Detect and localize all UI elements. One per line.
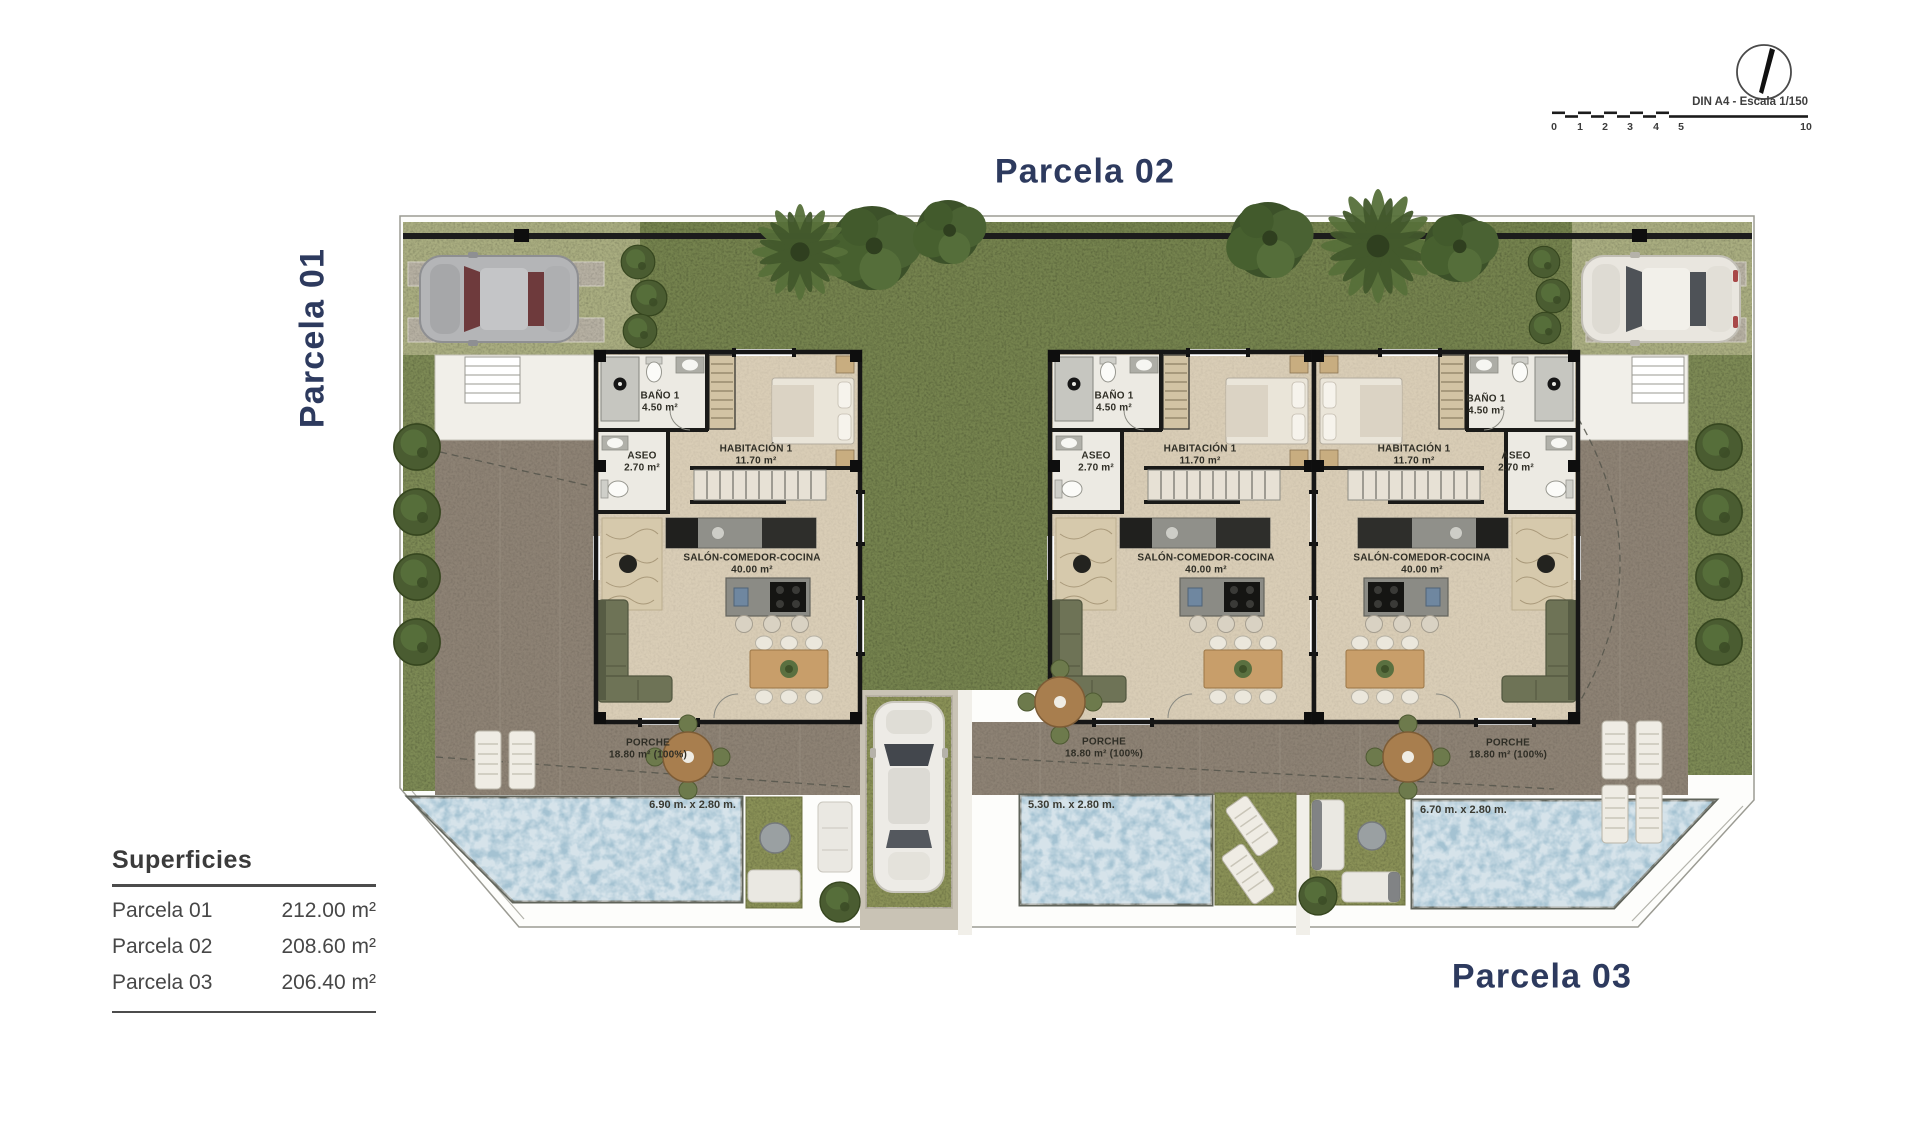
- room-label-aseo-3: ASEO2.70 m²: [1498, 451, 1534, 474]
- car-driveway: [870, 702, 948, 892]
- room-label-salon-3: SALÓN-COMEDOR-COCINA40.00 m²: [1353, 553, 1490, 576]
- parcel-02-title: Parcela 02: [995, 153, 1175, 192]
- car-parcel-03: [1582, 252, 1740, 346]
- legend-row-parcel-02: Parcela 02208.60 m²: [112, 929, 376, 965]
- room-label-porche-2: PORCHE18.80 m² (100%): [1065, 737, 1143, 760]
- pools: [408, 795, 1716, 908]
- room-label-bano-1: BAÑO 14.50 m²: [641, 391, 680, 414]
- pool-2-dimensions: 5.30 m. x 2.80 m.: [1028, 799, 1115, 811]
- room-label-aseo-2: ASEO2.70 m²: [1078, 451, 1114, 474]
- pool-3-dimensions: 6.70 m. x 2.80 m.: [1420, 804, 1507, 816]
- legend-row-parcel-03: Parcela 03206.40 m²: [112, 965, 376, 1001]
- scale-tick-4: 4: [1653, 121, 1659, 133]
- room-label-porche-1: PORCHE18.80 m² (100%): [609, 738, 687, 761]
- scale-tick-1: 1: [1577, 121, 1583, 133]
- legend-divider-bottom: [112, 1011, 376, 1013]
- scale-caption: DIN A4 - Escala 1/150: [1640, 96, 1808, 108]
- pool-2: [1020, 795, 1212, 905]
- house-3: [1309, 348, 1581, 727]
- scale-tick-5: 5: [1678, 121, 1684, 133]
- room-label-habitacion-3: HABITACIÓN 111.70 m²: [1378, 444, 1451, 467]
- legend-divider: [112, 884, 376, 887]
- room-label-aseo-1: ASEO2.70 m²: [624, 451, 660, 474]
- legend-title: Superficies: [112, 846, 376, 875]
- car-parcel-01: [420, 252, 578, 346]
- scale-bar: [1552, 112, 1808, 118]
- pool-1-dimensions: 6.90 m. x 2.80 m.: [600, 799, 736, 811]
- room-label-salon-2: SALÓN-COMEDOR-COCINA40.00 m²: [1137, 553, 1274, 576]
- room-label-bano-3: BAÑO 14.50 m²: [1467, 394, 1506, 417]
- scale-tick-0: 0: [1551, 121, 1557, 133]
- scale-tick-3: 3: [1627, 121, 1633, 133]
- scale-tick-2: 2: [1602, 121, 1608, 133]
- house-1: [593, 348, 865, 727]
- room-label-porche-3: PORCHE18.80 m² (100%): [1469, 738, 1547, 761]
- north-arrow-icon: [1737, 45, 1791, 99]
- surface-legend: Superficies Parcela 01212.00 m² Parcela …: [112, 846, 376, 1019]
- parcel-01-title: Parcela 01: [294, 248, 333, 428]
- house-2: [1047, 348, 1319, 727]
- site-plan-page: Parcela 02 Parcela 01 Parcela 03 BAÑO 14…: [0, 0, 1920, 1140]
- parcel-03-title: Parcela 03: [1452, 958, 1632, 997]
- room-label-habitacion-1: HABITACIÓN 111.70 m²: [720, 444, 793, 467]
- room-label-habitacion-2: HABITACIÓN 111.70 m²: [1164, 444, 1237, 467]
- scale-tick-10: 10: [1800, 121, 1812, 133]
- room-label-bano-2: BAÑO 14.50 m²: [1095, 391, 1134, 414]
- legend-row-parcel-01: Parcela 01212.00 m²: [112, 893, 376, 929]
- room-label-salon-1: SALÓN-COMEDOR-COCINA40.00 m²: [683, 553, 820, 576]
